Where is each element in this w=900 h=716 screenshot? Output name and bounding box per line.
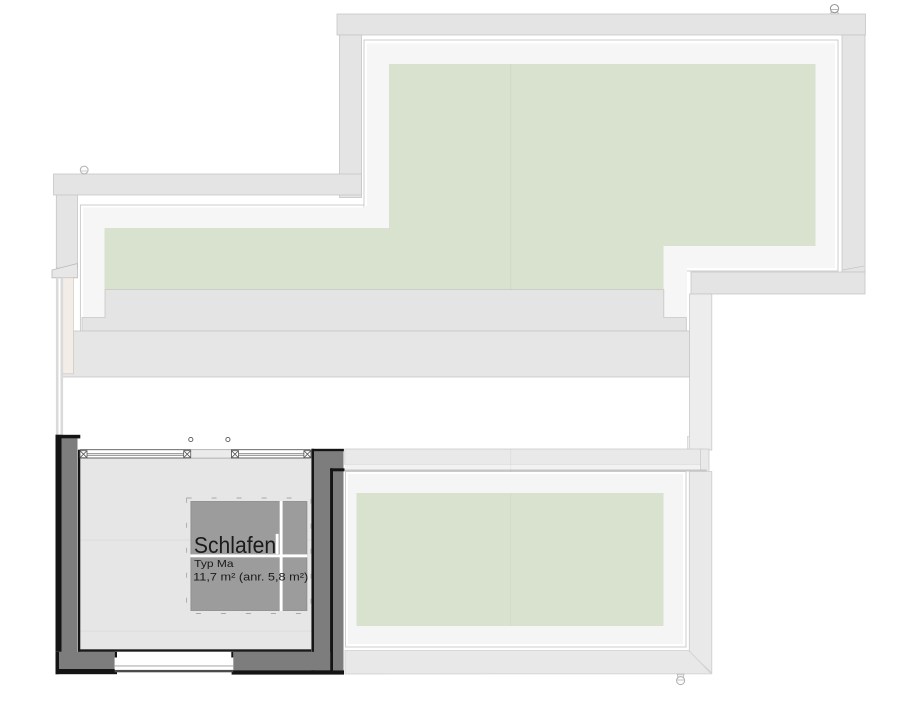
svg-text:Typ Ma: Typ Ma bbox=[194, 559, 234, 570]
svg-text:Schlafen: Schlafen bbox=[194, 532, 276, 558]
svg-text:11,7 m² (anr. 5,8 m²): 11,7 m² (anr. 5,8 m²) bbox=[193, 572, 308, 584]
